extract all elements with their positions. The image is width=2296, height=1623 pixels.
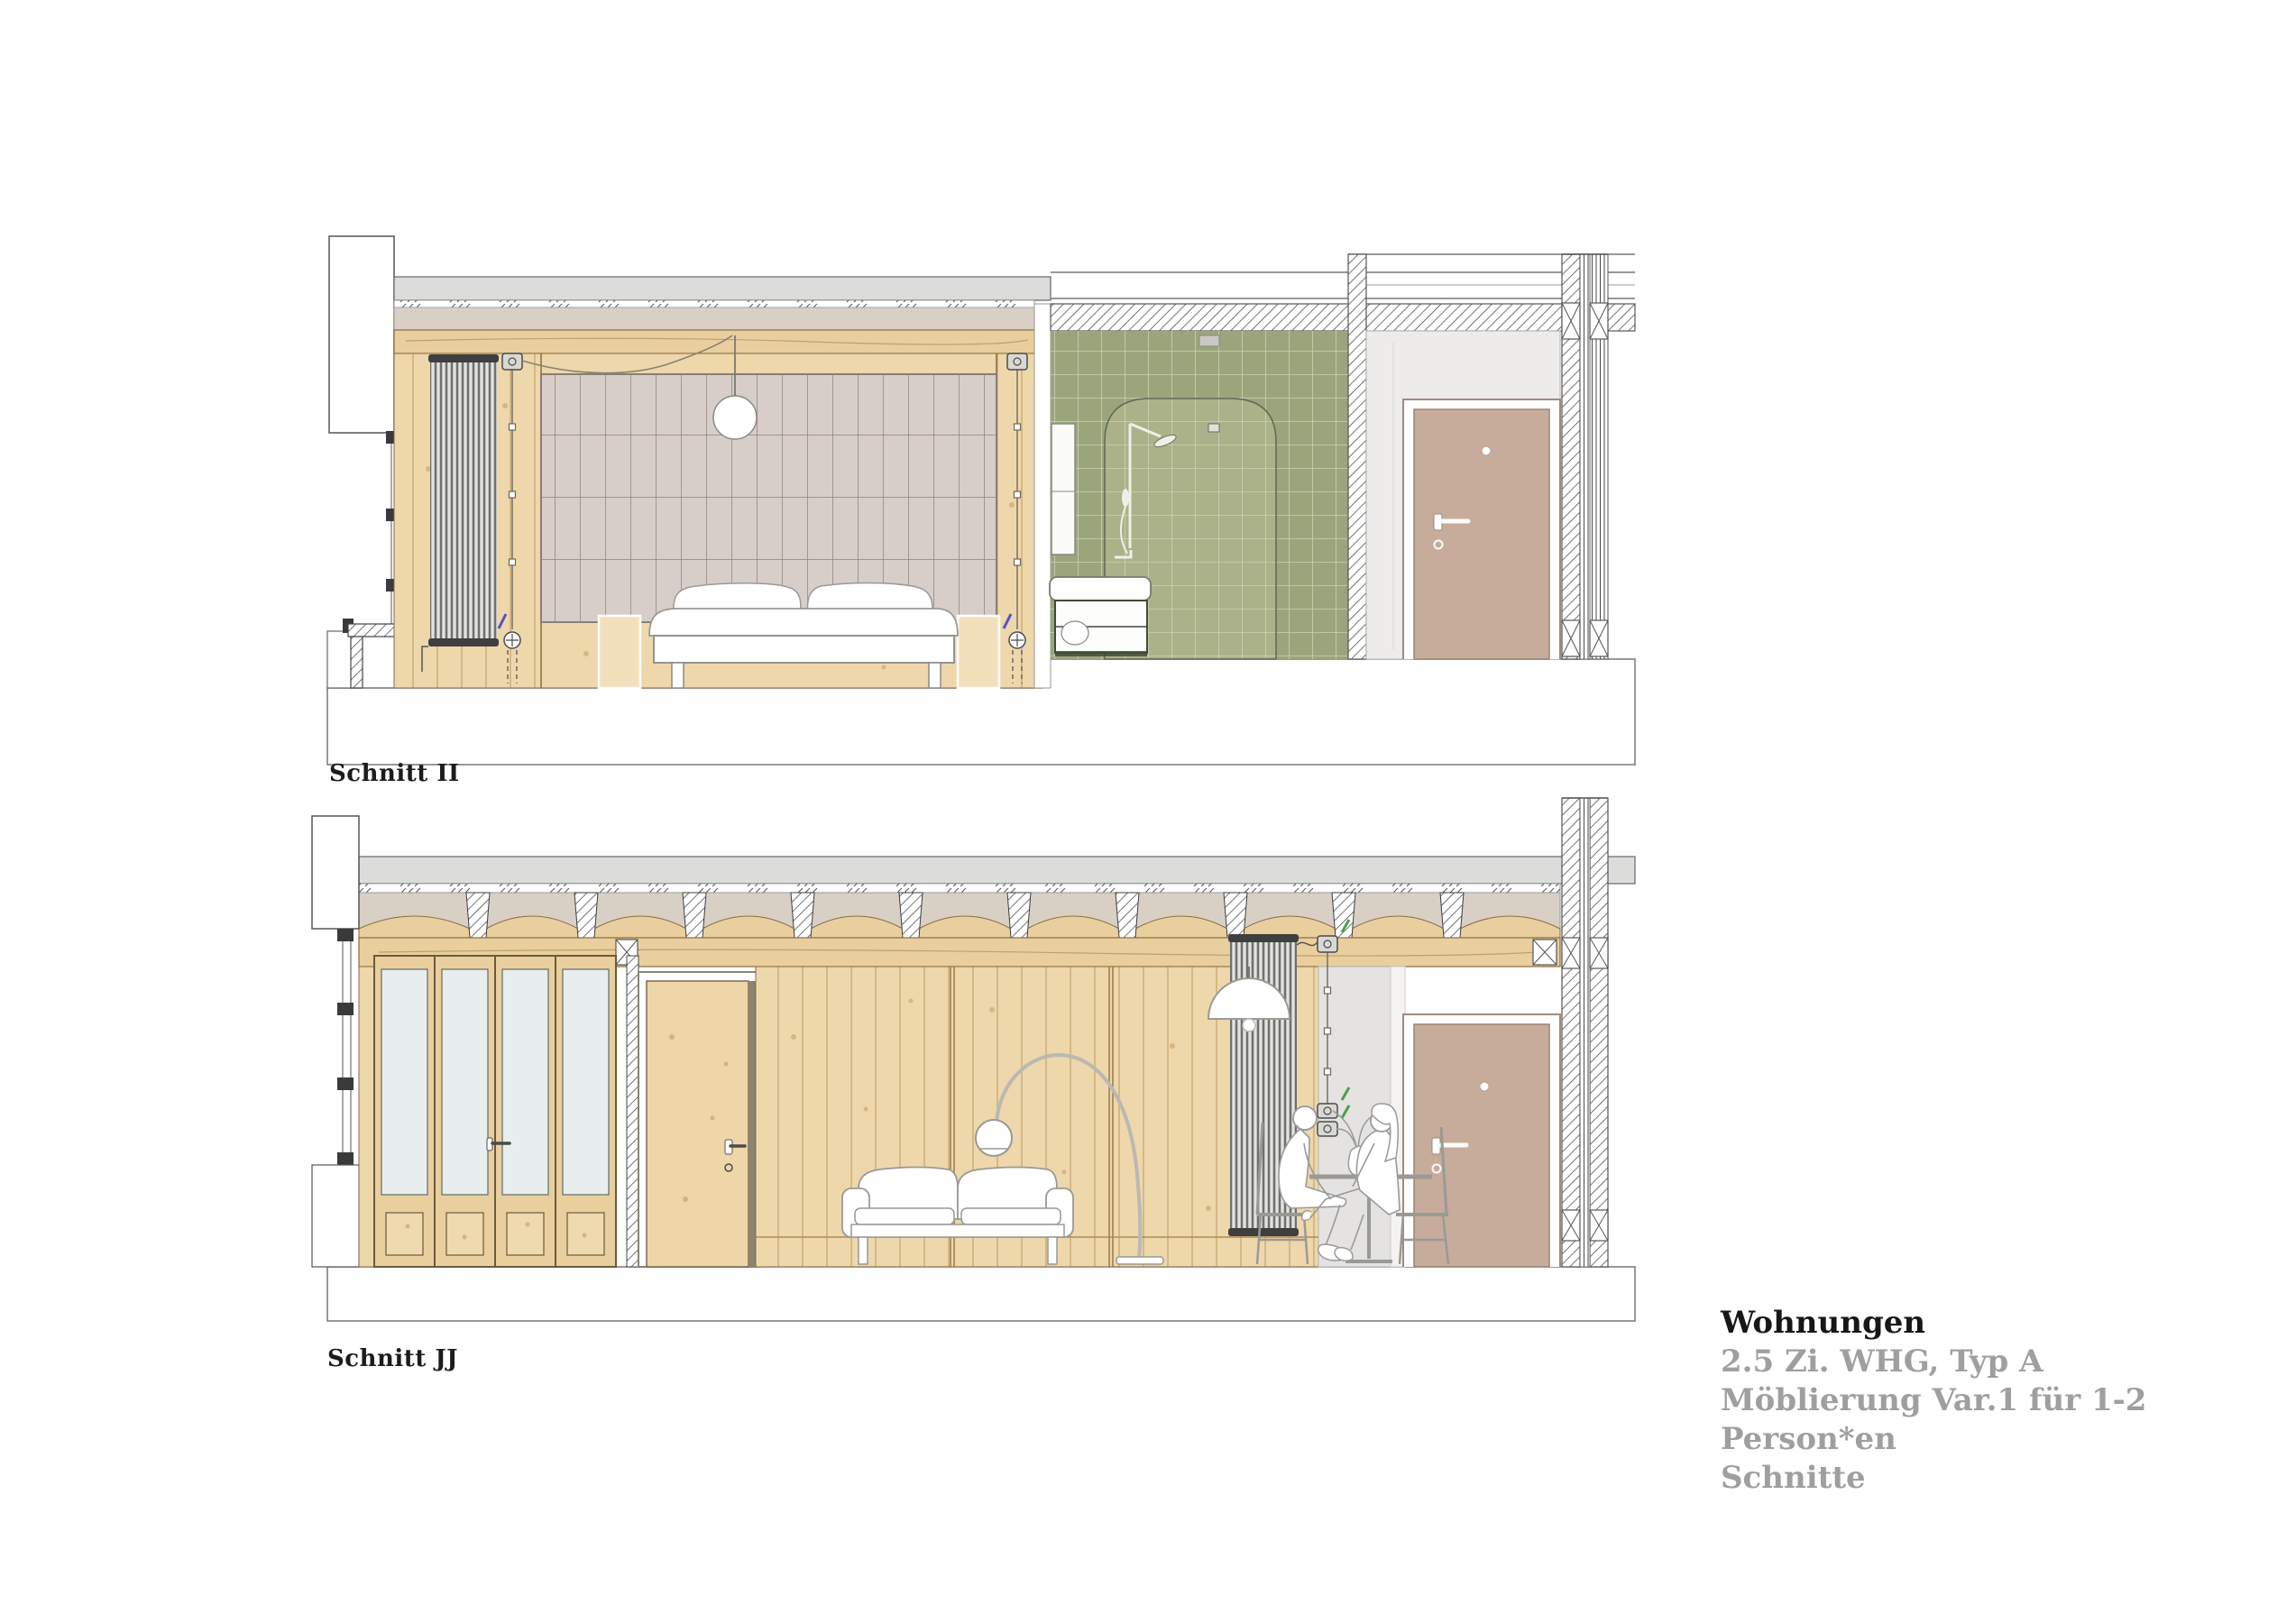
- peephole: [1482, 446, 1491, 455]
- title-block: Wohnungen 2.5 Zi. WHG, Typ A Möblierung …: [1721, 1304, 2296, 1498]
- ceiling-vaulted: [359, 857, 1635, 967]
- title-block-sheet-content: Schnitte: [1721, 1459, 2296, 1498]
- cut-column: [1348, 254, 1366, 659]
- timber-vaults: [359, 916, 1560, 938]
- socket-upper: [1318, 1104, 1337, 1118]
- upper-band-right: [1051, 254, 1635, 331]
- entry-door-top: [1403, 399, 1560, 659]
- drawing-sheet: Schnitt II Schnitt JJ Wohnungen 2.5 Zi. …: [0, 0, 2296, 1623]
- wooden-door: [638, 972, 758, 1267]
- exterior-wall-right-top: [1562, 254, 1608, 659]
- cut-post: [627, 956, 638, 1267]
- section-label-schnitt-ii: Schnitt II: [329, 760, 460, 787]
- title-block-furnishing-variant: Möblierung Var.1 für 1-2 Person*en: [1721, 1381, 2296, 1459]
- nightstand-left: [599, 616, 640, 688]
- section-schnitt-jj: [312, 798, 1635, 1321]
- title-block-project: Wohnungen: [1721, 1304, 2296, 1343]
- partition-cut: [1034, 304, 1051, 688]
- section-schnitt-ii: [327, 236, 1635, 765]
- exterior-wall-right-bottom: [1562, 798, 1608, 1267]
- peephole: [1480, 1082, 1489, 1091]
- floor-slab: [327, 1267, 1635, 1321]
- bathroom: [1050, 331, 1348, 659]
- junction-box: [1318, 936, 1337, 952]
- section-label-schnitt-jj: Schnitt JJ: [327, 1345, 458, 1372]
- socket-lower: [1318, 1122, 1337, 1136]
- title-block-apartment-type: 2.5 Zi. WHG, Typ A: [1721, 1343, 2296, 1381]
- nightstand-right: [958, 616, 999, 688]
- entry-door-bottom: [1403, 1014, 1560, 1267]
- glazed-partition: [374, 956, 616, 1267]
- radiator-bedroom: [422, 354, 499, 672]
- concrete-wall-strip: [1318, 920, 1391, 1267]
